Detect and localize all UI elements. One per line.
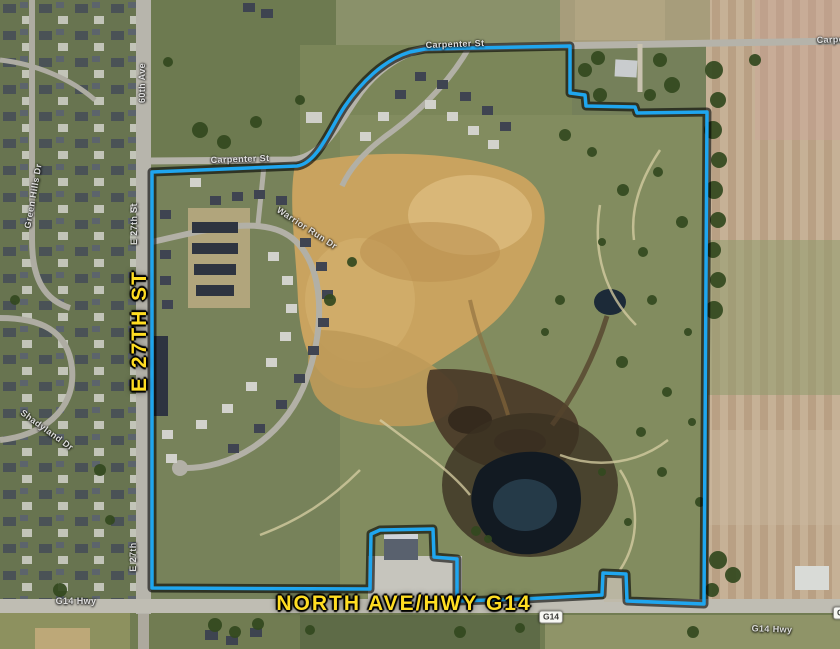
- aerial-map-image: Carpenter St Carpenter St Carpenter St 6…: [0, 0, 840, 649]
- satellite-terrain: [0, 0, 840, 649]
